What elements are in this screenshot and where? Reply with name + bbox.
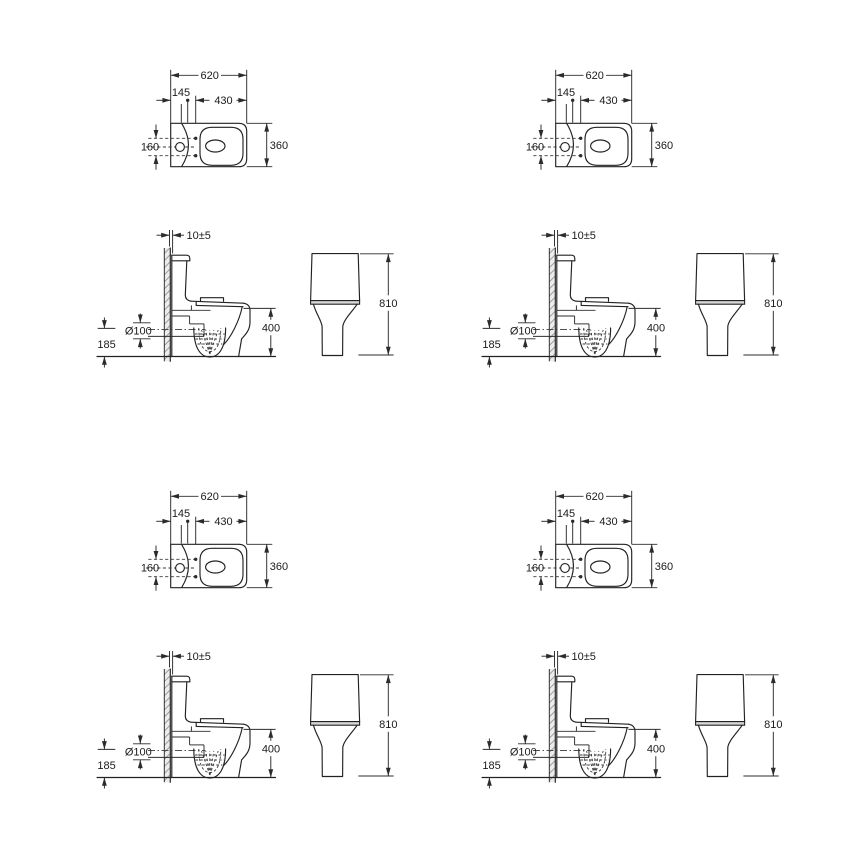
drawing-quadrant-top-right — [482, 70, 782, 368]
page: 620 145 430 — [0, 0, 850, 850]
drawing-quadrant-bottom-right — [482, 491, 782, 789]
drawing-quadrant-top-left — [97, 70, 397, 368]
technical-drawing-canvas: 620 145 430 — [0, 0, 850, 850]
drawing-quadrant-bottom-left — [97, 491, 397, 789]
